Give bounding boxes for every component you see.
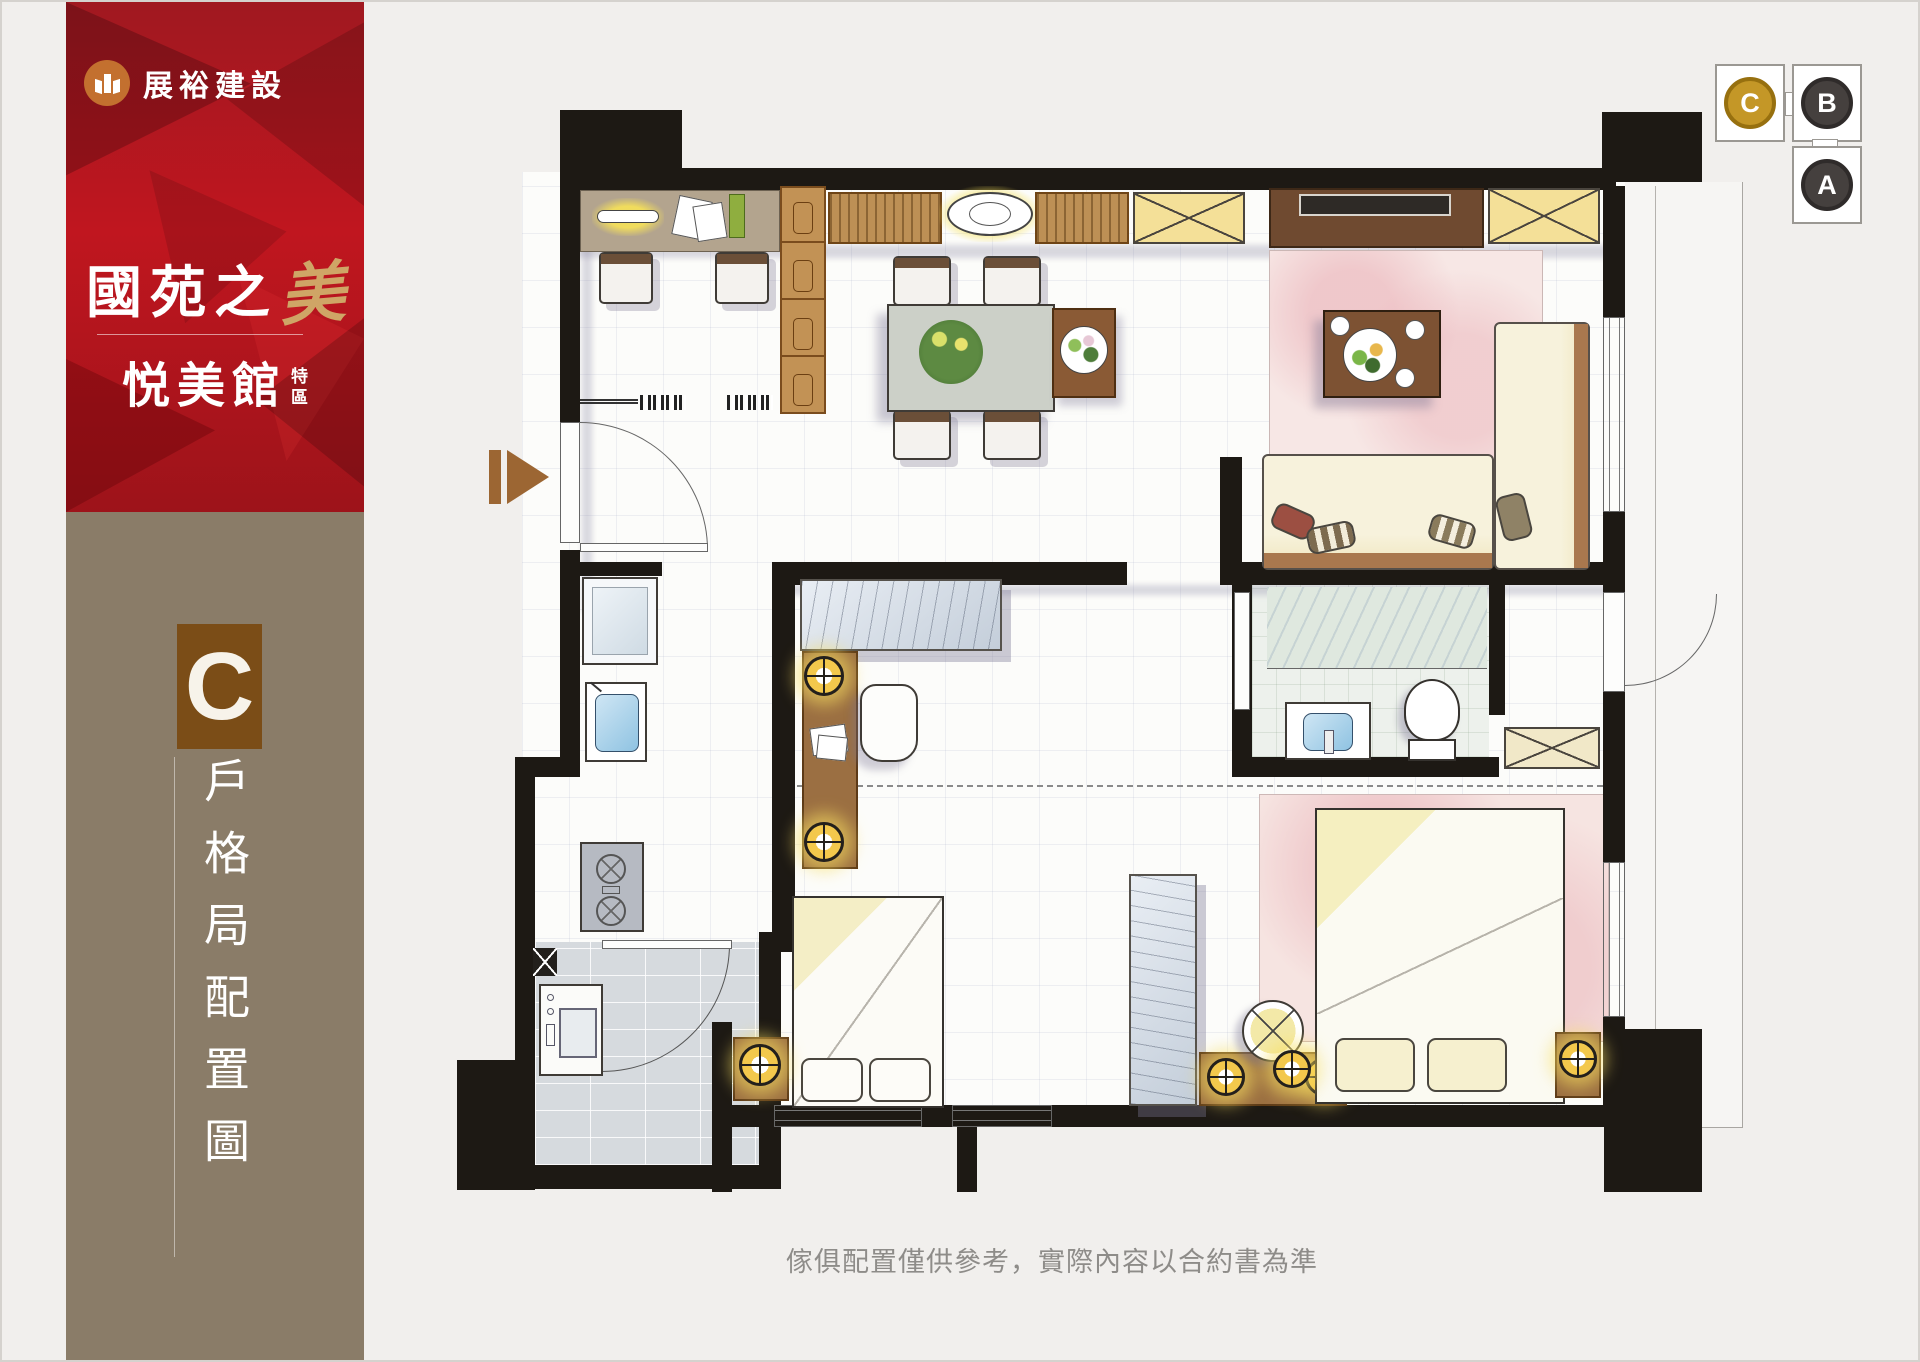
laundry-door-leaf — [602, 940, 732, 949]
wall-segment — [560, 110, 682, 168]
unit-letter: C — [185, 632, 254, 742]
burner — [596, 896, 626, 926]
coffee-table-tray — [1343, 328, 1397, 382]
keyplan-unit-b-badge: B — [1801, 77, 1853, 129]
keyplan-unit-b: B — [1792, 64, 1862, 142]
bedroom2-pillow — [1427, 1038, 1507, 1092]
bedside-lamp-icon — [1273, 1050, 1311, 1088]
dining-chair — [983, 410, 1041, 460]
sideboard-console — [1035, 192, 1129, 244]
bedroom2-pillow — [1335, 1038, 1415, 1092]
bedroom2-window — [1603, 862, 1625, 1017]
wall-segment — [560, 168, 1616, 190]
wall-segment — [1603, 186, 1625, 317]
wall-segment — [580, 562, 662, 576]
project-subtitle: 悦美館 特 區 — [66, 346, 364, 416]
vanity-lamp-icon — [804, 822, 844, 862]
master-pillow — [869, 1058, 931, 1102]
stove-knob — [602, 886, 620, 894]
desk-lamp-icon — [1207, 1058, 1245, 1096]
storage-cabinet-x — [1488, 188, 1600, 244]
balcony-door-opening — [1603, 592, 1625, 692]
balcony-slider-window — [1603, 317, 1625, 512]
threshold-marks — [727, 395, 773, 410]
desk-tray — [597, 210, 659, 223]
subtitle-tag: 特 區 — [291, 367, 308, 408]
wall-segment — [712, 1022, 732, 1192]
bath-sink-counter — [1285, 702, 1371, 760]
wall-segment — [772, 562, 795, 952]
keyplan-connector — [1785, 92, 1793, 116]
cabinet-handle — [793, 202, 813, 234]
sidebar-taupe-panel: C 戶格局配置圖 — [66, 512, 364, 1362]
unit-caption-column: 戶格局配置圖 — [174, 757, 257, 1257]
washer — [539, 984, 603, 1076]
keyplan-connector — [1812, 139, 1838, 147]
desk-paper — [692, 202, 727, 242]
company-name: 展裕建設 — [143, 61, 287, 105]
washer-door — [559, 1008, 597, 1058]
subtitle-tag-char: 特 — [291, 367, 308, 387]
table-plant — [919, 320, 983, 384]
wall-segment — [1602, 112, 1702, 182]
sink-faucet — [590, 682, 602, 693]
tv-screen — [1299, 194, 1451, 216]
duvet-fold-line — [1317, 898, 1563, 1015]
wall-segment — [1489, 577, 1505, 715]
entry-arrow-bar — [489, 450, 501, 504]
wall-segment — [560, 550, 580, 757]
wall-segment — [1604, 1029, 1702, 1192]
shower-area — [1267, 587, 1487, 669]
nightstand-lamp-icon — [1559, 1040, 1597, 1078]
toilet-bowl — [1404, 679, 1460, 741]
threshold-line — [580, 399, 638, 404]
dining-chair — [893, 256, 951, 306]
bedroom-hall-door-leaf — [1234, 592, 1250, 710]
toilet — [1404, 679, 1460, 763]
wall-segment — [957, 1127, 977, 1192]
wall-segment — [1603, 692, 1625, 862]
study-chair — [599, 252, 653, 304]
threshold-marks — [640, 395, 686, 410]
developer-logo: 展裕建設 — [84, 60, 287, 106]
sideboard-console — [828, 192, 942, 244]
sofa-base — [1574, 324, 1588, 568]
ceiling-lamp-inner — [969, 202, 1011, 226]
nightstand-lamp-icon — [739, 1044, 781, 1086]
front-door-leaf — [580, 543, 708, 552]
entry-arrow-triangle — [507, 450, 549, 504]
shaft-marker-x — [533, 948, 557, 976]
storage-cabinet-x — [1504, 727, 1600, 769]
vanity-tray — [816, 734, 848, 761]
wall-segment — [515, 757, 580, 777]
title-divider — [97, 334, 303, 335]
project-title: 國苑之美 — [66, 236, 364, 332]
unit-letter-box: C — [177, 624, 262, 749]
dining-chair — [893, 410, 951, 460]
wall-segment — [515, 777, 535, 1067]
brochure-page: 展裕建設 國苑之美 悦美館 特 區 C 戶格局配置圖 — [0, 0, 1920, 1362]
bath-faucet — [1324, 730, 1334, 754]
sink-basin — [595, 694, 639, 752]
front-door-panel — [560, 422, 580, 543]
cabinet-handle — [793, 260, 813, 292]
wall-segment — [457, 1060, 535, 1190]
toilet-tank — [1408, 739, 1456, 761]
fridge-top — [592, 587, 648, 655]
disclaimer-text: 傢俱配置僅供參考，實際內容以合約書為準 — [427, 1240, 1677, 1279]
washer-knob — [547, 994, 554, 1001]
washer-panel — [546, 1024, 555, 1046]
study-chair — [715, 252, 769, 304]
kitchen-sink-counter — [585, 682, 647, 762]
unit-caption: 戶格局配置圖 — [191, 757, 257, 1189]
washer-knob — [547, 1008, 554, 1015]
bedroom2-wardrobe — [1129, 874, 1197, 1106]
wall-segment — [1220, 457, 1242, 585]
vanity-lamp-icon — [804, 656, 844, 696]
master-pillow — [801, 1058, 863, 1102]
sidebar-red-panel: 展裕建設 國苑之美 悦美館 特 區 — [66, 2, 364, 512]
vanity-chair — [860, 684, 918, 762]
project-title-main: 國苑之 — [86, 263, 278, 325]
keyplan-unit-a-badge: A — [1801, 159, 1853, 211]
burner — [596, 854, 626, 884]
subtitle-name: 悦美館 — [122, 346, 287, 416]
keyplan-unit-a: A — [1792, 146, 1862, 224]
project-title-accent: 美 — [274, 238, 348, 339]
coffee-cup — [1405, 320, 1425, 340]
master-window — [774, 1105, 922, 1127]
sofa-base — [1264, 553, 1492, 568]
coffee-cup — [1330, 316, 1350, 336]
wall-segment — [1247, 757, 1499, 777]
side-table-tray — [1060, 326, 1108, 374]
coffee-cup — [1395, 368, 1415, 388]
master-wardrobe — [800, 579, 1002, 651]
sidebar: 展裕建設 國苑之美 悦美館 特 區 C 戶格局配置圖 — [66, 2, 364, 1362]
fridge — [582, 577, 658, 665]
wall-segment — [560, 190, 580, 422]
storage-cabinet-x — [1133, 192, 1245, 244]
stove — [580, 842, 644, 932]
dining-chair — [983, 256, 1041, 306]
bedroom2-low-window — [952, 1105, 1052, 1127]
desk-plant — [729, 194, 745, 238]
ceiling-beam-dashed-line — [797, 785, 1603, 787]
wall-segment — [1603, 512, 1625, 592]
builder-book-icon — [84, 60, 130, 106]
cabinet-handle — [793, 374, 813, 406]
subtitle-tag-char: 區 — [291, 388, 308, 408]
cabinet-handle — [793, 318, 813, 350]
floorplan — [427, 82, 1747, 1212]
